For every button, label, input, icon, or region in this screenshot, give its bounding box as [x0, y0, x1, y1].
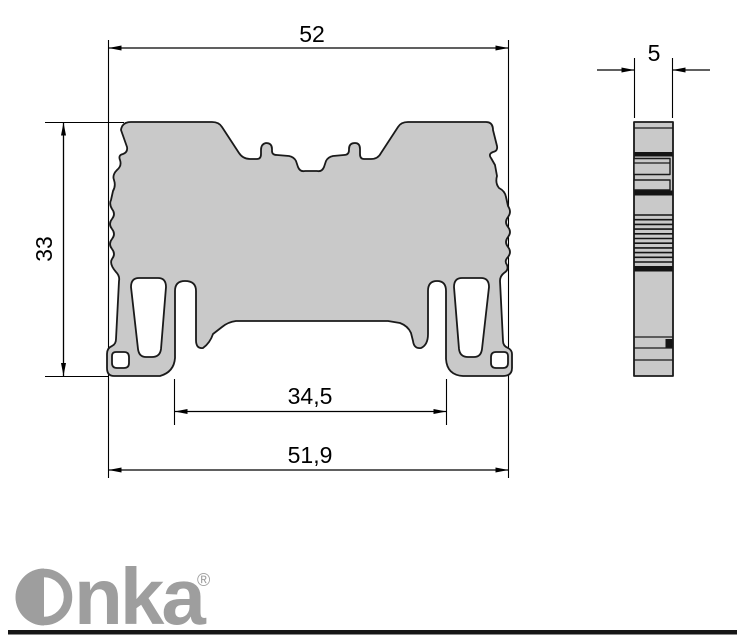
- dim-label-top-width: 52: [299, 21, 325, 47]
- front-view: [107, 122, 512, 376]
- dim-label-height: 33: [31, 236, 57, 262]
- dim-label-rail-slot-width: 34,5: [288, 383, 333, 409]
- drawing-canvas: 52 33 34,5 51,9 5 nka ®: [0, 0, 750, 636]
- arrow-left-icon: [175, 409, 188, 414]
- side-tab-1: [634, 159, 670, 175]
- arrow-left-icon: [673, 68, 686, 73]
- side-band-3: [635, 266, 673, 272]
- registered-mark: ®: [197, 570, 210, 590]
- dimension-bottom-width: 51,9: [109, 442, 509, 473]
- arrow-left-icon: [109, 468, 122, 473]
- side-band-1: [635, 152, 673, 157]
- arrow-right-icon: [496, 46, 509, 51]
- side-band-2: [635, 191, 673, 196]
- dim-label-thickness: 5: [648, 40, 661, 66]
- dimension-top-width: 52: [109, 21, 509, 51]
- arrow-right-icon: [434, 409, 447, 414]
- dimension-rail-slot-width: 34,5: [175, 383, 447, 414]
- side-tab-2: [634, 180, 670, 190]
- arrow-down-icon: [61, 363, 66, 376]
- logo-text: nka: [74, 552, 206, 636]
- arrow-right-icon: [496, 468, 509, 473]
- dimension-height: 33: [31, 123, 66, 377]
- arrow-left-icon: [109, 46, 122, 51]
- side-foot-square: [666, 339, 673, 348]
- arrow-right-icon: [622, 68, 635, 73]
- arrow-up-icon: [61, 123, 66, 136]
- brand-logo: nka ®: [16, 552, 211, 636]
- technical-drawing-svg: 52 33 34,5 51,9 5 nka ®: [0, 0, 750, 636]
- bottom-divider: [8, 630, 737, 635]
- front-profile-shape: [107, 122, 512, 376]
- dimension-thickness: 5: [597, 40, 710, 73]
- dim-label-bottom-width: 51,9: [288, 442, 333, 468]
- side-view: [634, 122, 673, 376]
